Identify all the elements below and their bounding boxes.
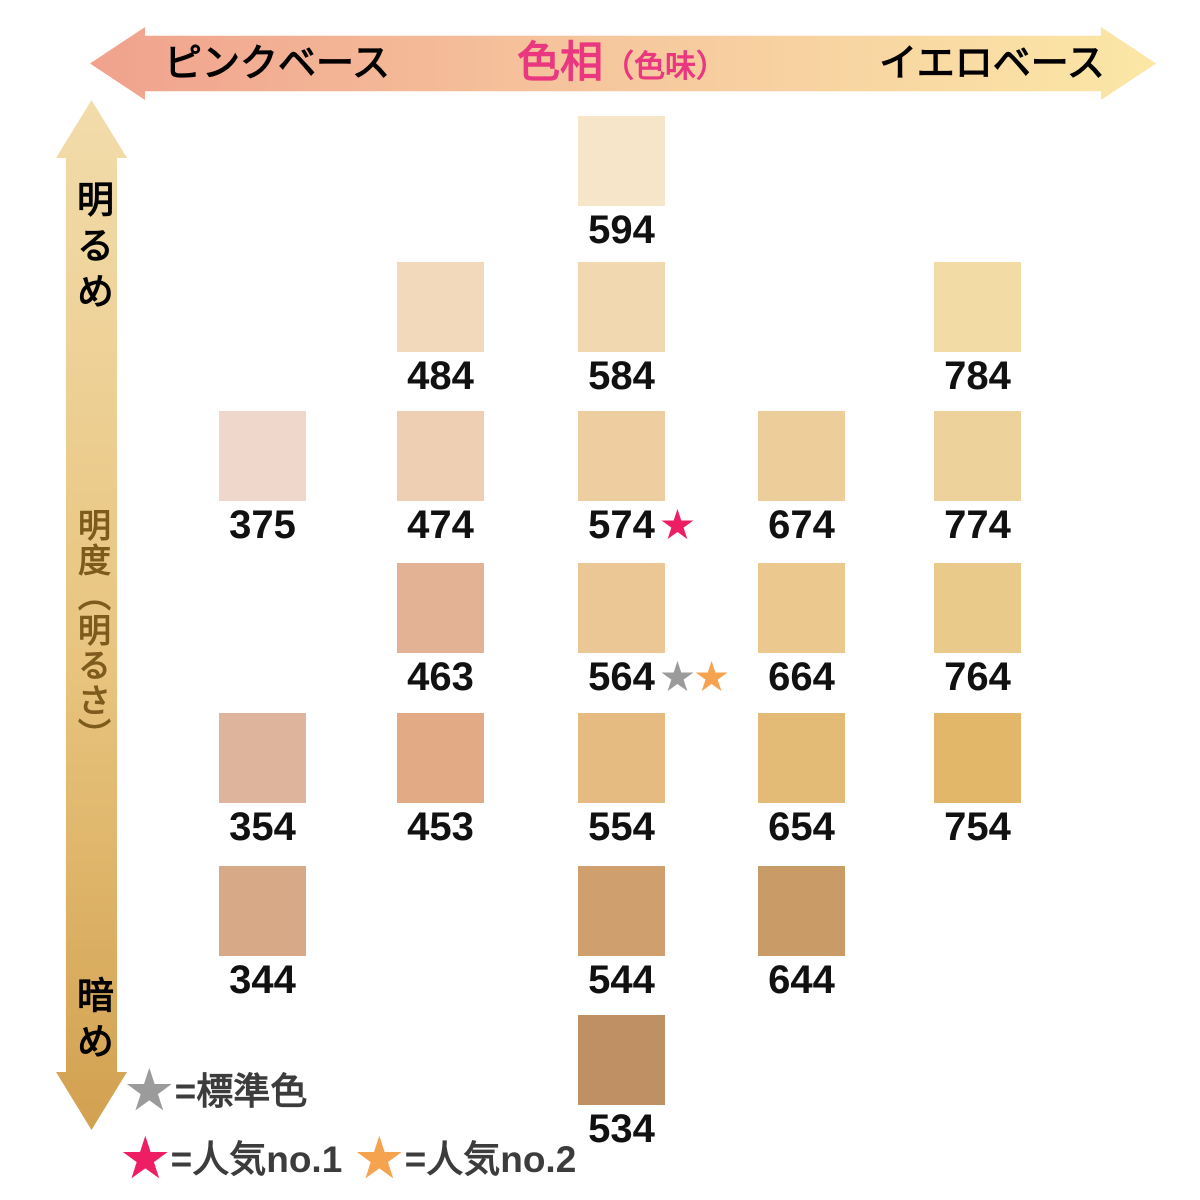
shade-cell-375: 375 (219, 411, 306, 501)
shade-code-484: 484 (407, 356, 474, 396)
shade-cell-463: 463 (397, 563, 484, 653)
shade-star-group: ★ (661, 507, 694, 544)
shade-swatch-554 (578, 713, 665, 803)
shade-cell-774: 774 (934, 411, 1021, 501)
shade-swatch-654 (758, 713, 845, 803)
shade-cell-574: 574★ (578, 411, 665, 501)
legend-label-popularity-no1: =人気no.1 (171, 1141, 343, 1178)
shade-code-text: 463 (407, 655, 474, 699)
gray-star-icon: ★ (661, 659, 694, 696)
shade-code-354: 354 (229, 807, 296, 847)
shade-code-574: 574★ (588, 505, 655, 545)
shade-code-554: 554 (588, 807, 655, 847)
shade-code-644: 644 (768, 960, 835, 1000)
brightness-axis-bright-label: 明るめ (74, 180, 111, 318)
shade-swatch-784 (934, 262, 1021, 352)
shade-cell-534: 534 (578, 1015, 665, 1105)
shade-code-344: 344 (229, 960, 296, 1000)
shade-code-text: 764 (944, 655, 1011, 699)
shade-code-text: 484 (407, 354, 474, 398)
legend-label-standard-color: =標準色 (175, 1073, 308, 1110)
shade-code-text: 754 (944, 805, 1011, 849)
shade-code-text: 554 (588, 805, 655, 849)
legend-item-popularity-no1: ★ =人気no.1 (122, 1136, 342, 1183)
shade-code-463: 463 (407, 657, 474, 697)
shade-code-544: 544 (588, 960, 655, 1000)
shade-swatch-674 (758, 411, 845, 501)
gray-star-icon: ★ (126, 1068, 173, 1115)
shade-swatch-544 (578, 866, 665, 956)
shade-cell-564: 564★★ (578, 563, 665, 653)
hue-axis-title-sub: （色味） (603, 49, 727, 84)
shade-code-784: 784 (944, 356, 1011, 396)
shade-code-text: 594 (588, 208, 655, 252)
shade-code-text: 774 (944, 503, 1011, 547)
shade-swatch-644 (758, 866, 845, 956)
shade-code-474: 474 (407, 505, 474, 545)
shade-cell-754: 754 (934, 713, 1021, 803)
shade-cell-674: 674 (758, 411, 845, 501)
shade-cell-584: 584 (578, 262, 665, 352)
hue-axis-pink-base-label: ピンクベース (164, 45, 390, 83)
shade-code-764: 764 (944, 657, 1011, 697)
hue-axis-yellow-base-label: イエロベース (879, 45, 1105, 83)
shade-cell-554: 554 (578, 713, 665, 803)
shade-code-text: 544 (588, 958, 655, 1002)
shade-code-774: 774 (944, 505, 1011, 545)
shade-cell-654: 654 (758, 713, 845, 803)
shade-swatch-453 (397, 713, 484, 803)
shade-swatch-764 (934, 563, 1021, 653)
shade-code-754: 754 (944, 807, 1011, 847)
shade-cell-664: 664 (758, 563, 845, 653)
shade-swatch-344 (219, 866, 306, 956)
legend-label-popularity-no2: =人気no.2 (405, 1141, 577, 1178)
shade-code-text: 534 (588, 1107, 655, 1151)
shade-code-584: 584 (588, 356, 655, 396)
shade-code-664: 664 (768, 657, 835, 697)
shade-code-text: 784 (944, 354, 1011, 398)
shade-cell-474: 474 (397, 411, 484, 501)
shade-swatch-354 (219, 713, 306, 803)
hue-axis-title: 色相（色味） (517, 42, 727, 85)
shade-code-text: 674 (768, 503, 835, 547)
shade-code-text: 574 (588, 503, 655, 547)
orange-star-icon: ★ (356, 1136, 403, 1183)
brightness-axis-title: 明度（明るさ） (76, 508, 109, 753)
shade-code-text: 344 (229, 958, 296, 1002)
shade-swatch-534 (578, 1015, 665, 1105)
pink-star-icon: ★ (661, 507, 694, 544)
shade-cell-354: 354 (219, 713, 306, 803)
shade-swatch-564 (578, 563, 665, 653)
shade-cell-453: 453 (397, 713, 484, 803)
shade-cell-594: 594 (578, 116, 665, 206)
shade-code-564: 564★★ (588, 657, 655, 697)
shade-cell-484: 484 (397, 262, 484, 352)
shade-swatch-754 (934, 713, 1021, 803)
shade-swatch-463 (397, 563, 484, 653)
shade-code-594: 594 (588, 210, 655, 250)
shade-swatch-594 (578, 116, 665, 206)
shade-swatch-664 (758, 563, 845, 653)
shade-code-654: 654 (768, 807, 835, 847)
shade-code-375: 375 (229, 505, 296, 545)
legend-item-standard-color: ★ =標準色 (126, 1068, 307, 1115)
shade-code-text: 664 (768, 655, 835, 699)
shade-code-text: 453 (407, 805, 474, 849)
shade-swatch-584 (578, 262, 665, 352)
shade-star-group: ★★ (661, 659, 728, 696)
shade-swatch-474 (397, 411, 484, 501)
shade-code-453: 453 (407, 807, 474, 847)
shade-code-674: 674 (768, 505, 835, 545)
shade-cell-644: 644 (758, 866, 845, 956)
orange-star-icon: ★ (695, 659, 728, 696)
shade-code-text: 474 (407, 503, 474, 547)
shade-cell-544: 544 (578, 866, 665, 956)
shade-code-text: 375 (229, 503, 296, 547)
shade-code-text: 354 (229, 805, 296, 849)
shade-cell-344: 344 (219, 866, 306, 956)
hue-axis-title-main: 色相 (517, 39, 603, 87)
shade-code-text: 564 (588, 655, 655, 699)
shade-code-text: 644 (768, 958, 835, 1002)
shade-swatch-774 (934, 411, 1021, 501)
shade-swatch-484 (397, 262, 484, 352)
shade-code-text: 654 (768, 805, 835, 849)
shade-map-chart: ピンクベース 色相（色味） イエロベース 明るめ 明度（明るさ） 暗め 5944… (0, 0, 1200, 1200)
shade-swatch-574 (578, 411, 665, 501)
shade-code-text: 584 (588, 354, 655, 398)
legend-item-popularity-no2: ★ =人気no.2 (356, 1136, 576, 1183)
shade-swatch-375 (219, 411, 306, 501)
shade-cell-784: 784 (934, 262, 1021, 352)
shade-code-534: 534 (588, 1109, 655, 1149)
shade-cell-764: 764 (934, 563, 1021, 653)
brightness-axis-dark-label: 暗め (74, 976, 111, 1068)
pink-star-icon: ★ (122, 1136, 169, 1183)
